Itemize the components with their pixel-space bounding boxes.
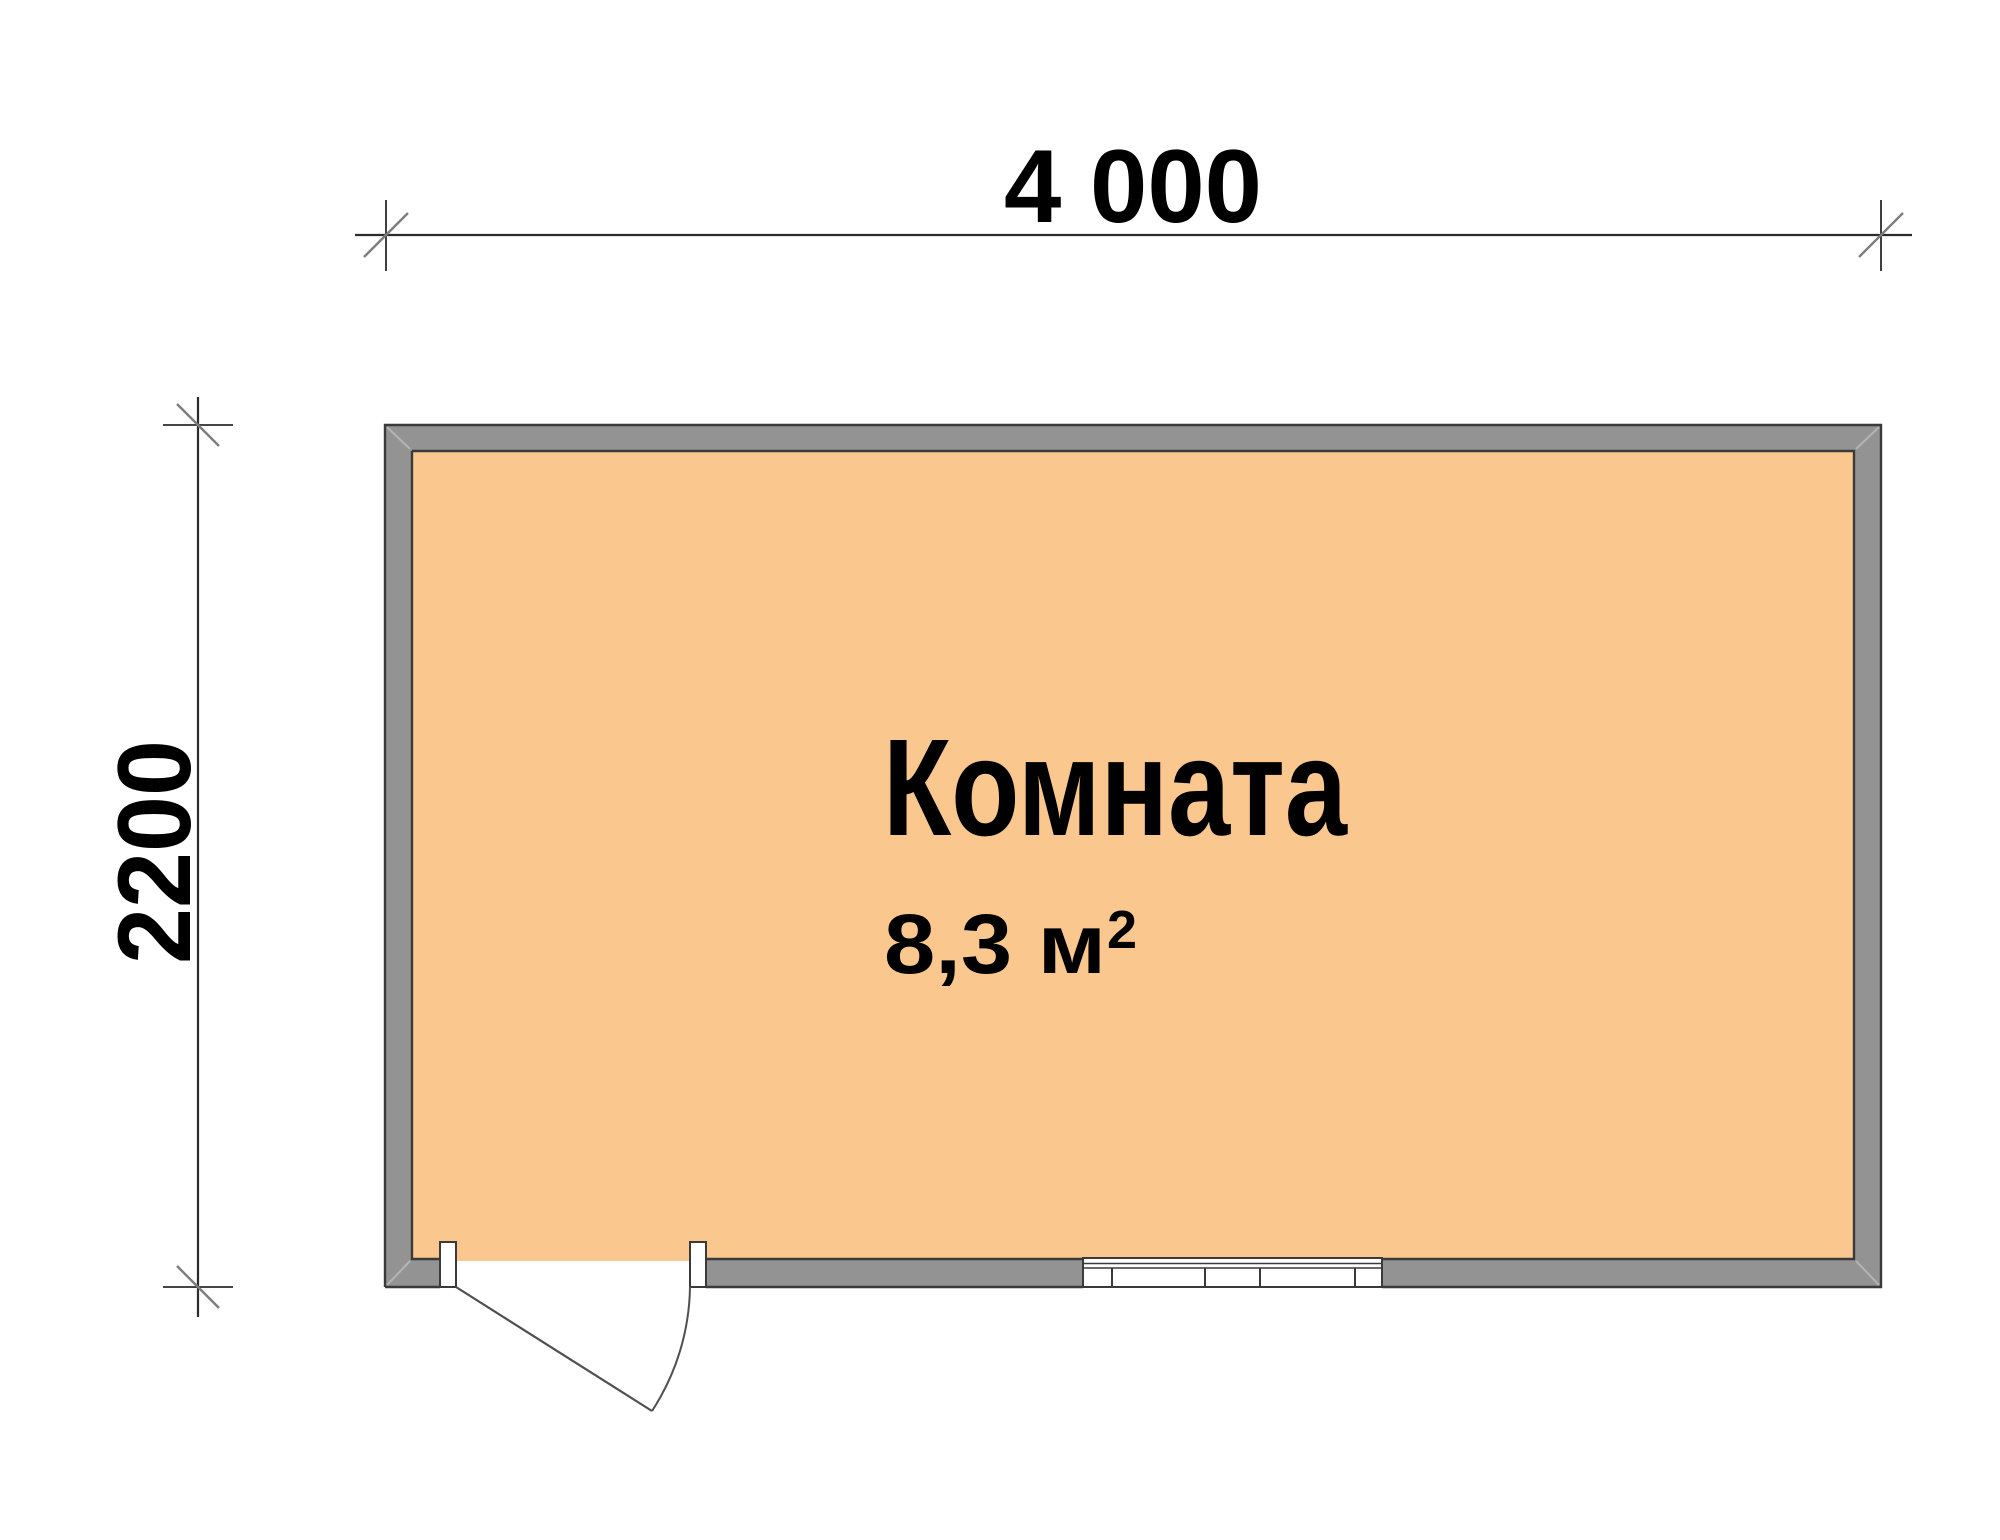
width-dimension-label: 4 000 — [1004, 129, 1262, 245]
door-jamb-left — [440, 1242, 456, 1287]
wall-bottom-right-segment — [1382, 1259, 1881, 1287]
room-area-superscript: 2 — [1107, 900, 1137, 960]
door-leaf — [456, 1287, 652, 1411]
wall-bottom-middle-segment — [706, 1259, 1083, 1287]
window — [1083, 1258, 1382, 1287]
room-name-label: Комната — [883, 711, 1348, 865]
wall-right — [1854, 425, 1881, 1287]
height-dimension-label: 2200 — [97, 740, 213, 964]
window-frame — [1083, 1258, 1382, 1287]
room-area-label: 8,3 м — [884, 897, 1106, 991]
floor-plan-page: 4 000 2200 — [0, 0, 2000, 1540]
wall-bottom-left-segment — [385, 1259, 440, 1287]
floor-plan-canvas: 4 000 2200 — [0, 0, 2000, 1540]
room: Комната 8,3 м 2 — [385, 425, 1881, 1411]
door-jamb-right — [690, 1242, 706, 1287]
wall-left — [385, 425, 412, 1287]
door — [440, 1242, 706, 1411]
door-swing-arc-icon — [652, 1287, 690, 1411]
wall-top — [385, 425, 1881, 451]
